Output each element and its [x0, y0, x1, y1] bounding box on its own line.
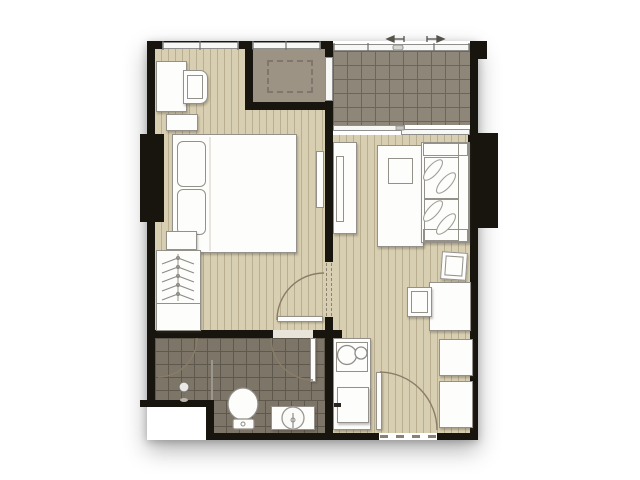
column-left: [140, 134, 164, 222]
wall-bathroom-kitchen: [325, 338, 333, 433]
side-table-tray: [388, 158, 413, 184]
entrance-threshold-dashes: [380, 435, 436, 438]
sofa: [421, 142, 470, 243]
closet-side-window: [325, 57, 333, 101]
floor-plan-canvas: [0, 0, 640, 480]
wall-bathroom-top-stub: [313, 330, 342, 338]
balcony-railing: [333, 44, 470, 51]
bedroom-window: [162, 42, 239, 49]
wall-bathroom-step: [140, 400, 214, 407]
desk-chair-seat: [187, 75, 203, 99]
bathroom-floor-shower-side: [155, 338, 325, 400]
refrigerator-handle: [334, 403, 341, 407]
wardrobe: [156, 250, 201, 331]
nightstand-top: [166, 114, 198, 131]
wall-closet-left: [245, 41, 253, 110]
bathroom-door-leaf: [310, 338, 316, 382]
dining-chair-top: [440, 251, 468, 281]
wall-left: [147, 41, 155, 407]
balcony-sliding-door-panel-left: [333, 125, 405, 131]
closet-window: [252, 42, 321, 49]
nightstand-bottom: [166, 231, 197, 250]
refrigerator: [337, 387, 369, 423]
bed-pillow-top: [177, 141, 206, 187]
dining-chair-left: [407, 287, 432, 317]
wall-bedroom-bathroom: [147, 330, 273, 338]
dining-chair-left-seat: [411, 291, 428, 313]
wall-bottom: [206, 433, 478, 440]
closet-storage-dashed-outline: [267, 60, 313, 93]
bedroom-wall-tv: [316, 151, 324, 208]
dining-table: [429, 282, 471, 331]
sofa-cushion-top: [424, 157, 459, 199]
vanity: [271, 406, 315, 430]
cabinet-b: [439, 381, 473, 428]
bed-pillow-bottom: [177, 189, 206, 235]
side-table: [377, 145, 424, 247]
balcony-floor: [333, 51, 470, 125]
entrance-door-leaf: [376, 372, 382, 430]
wall-closet-bottom: [245, 102, 333, 110]
cabinet-a: [439, 339, 473, 376]
bedroom-doorway-dashes: [326, 263, 332, 316]
kitchen-sink-unit: [336, 342, 368, 372]
balcony-sliding-door-panel-right: [401, 129, 470, 135]
bathroom-doorway-threshold: [273, 330, 313, 338]
sofa-cushion-bottom: [424, 199, 459, 241]
bedroom-door-leaf: [277, 316, 323, 322]
desk-chair: [183, 70, 208, 104]
dining-chair-top-seat: [444, 255, 463, 276]
shower-glass-partition: [211, 360, 213, 400]
wardrobe-shelf-divider: [157, 303, 200, 304]
sofa-backrest: [458, 143, 469, 242]
living-room-tv: [336, 156, 344, 222]
column-right: [468, 133, 498, 228]
